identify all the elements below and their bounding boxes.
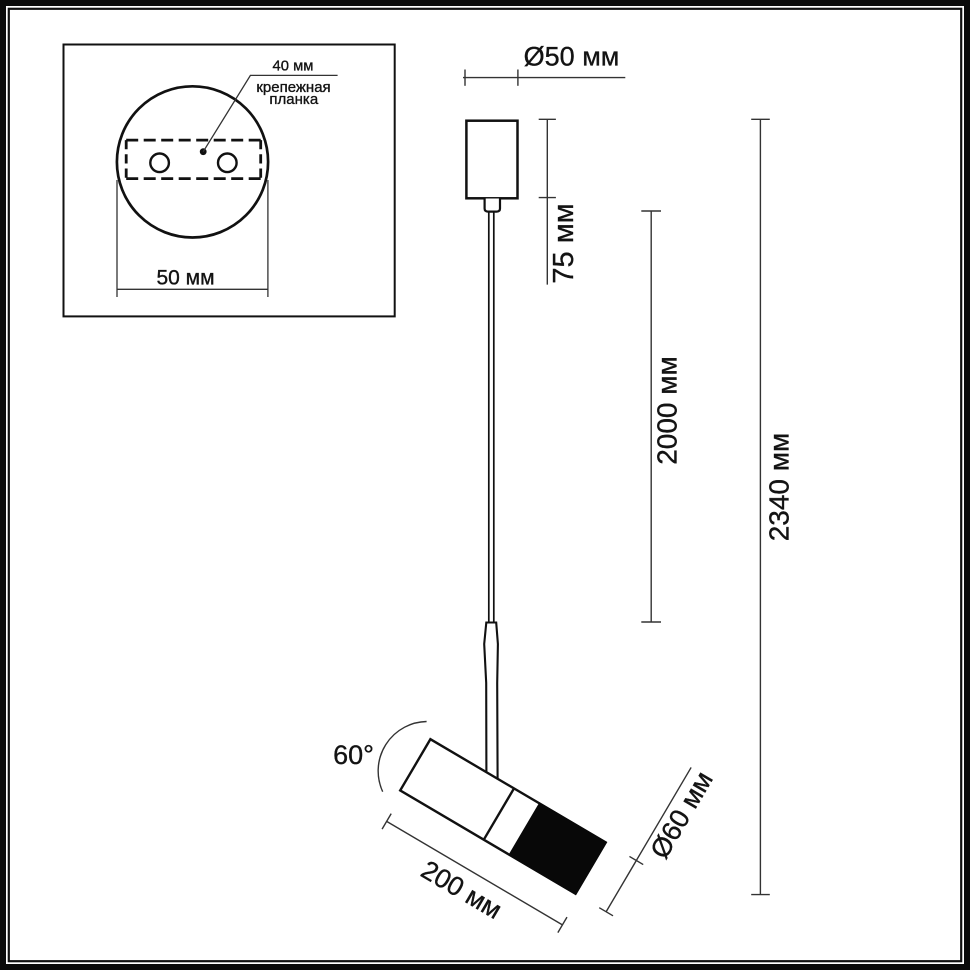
svg-text:75 мм: 75 мм xyxy=(548,203,580,283)
svg-text:40 мм: 40 мм xyxy=(273,59,314,75)
svg-text:2000 мм: 2000 мм xyxy=(652,356,683,465)
svg-text:планка: планка xyxy=(269,91,318,108)
svg-text:2340 мм: 2340 мм xyxy=(764,433,795,542)
svg-text:60°: 60° xyxy=(333,740,374,770)
svg-text:50 мм: 50 мм xyxy=(156,267,214,290)
svg-text:Ø50 мм: Ø50 мм xyxy=(524,42,620,72)
